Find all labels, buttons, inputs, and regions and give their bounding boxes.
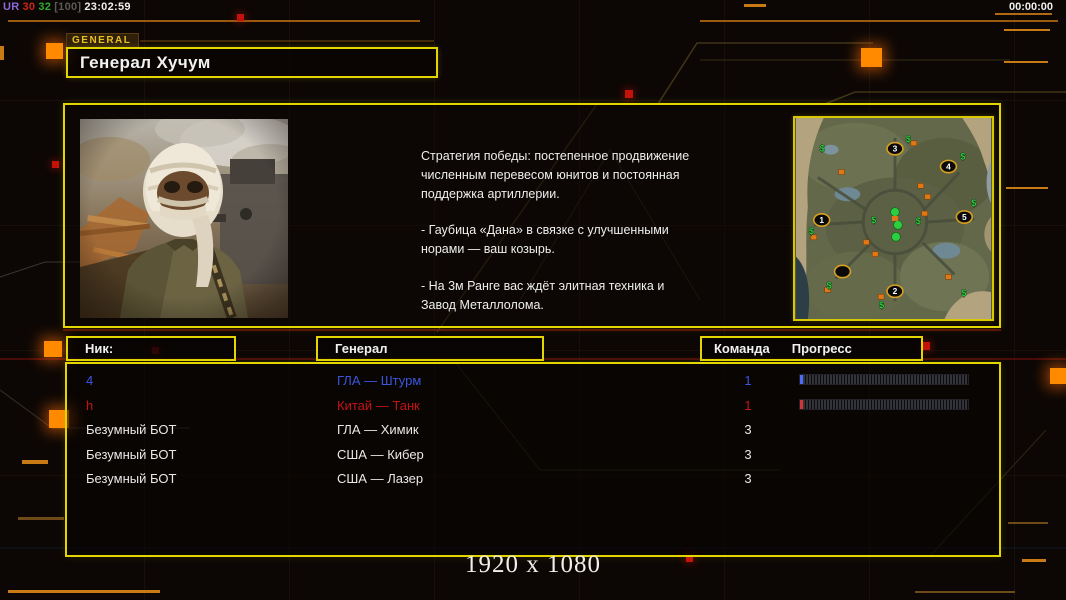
player-row: Безумный БОТ США — Кибер 3: [67, 443, 999, 467]
nick-header-label: Ник:: [85, 341, 113, 356]
debug-segment: 32: [38, 1, 51, 13]
player-general: ГЛА — Химик: [337, 422, 419, 437]
svg-text:2: 2: [893, 286, 898, 296]
column-header-general: Генерал: [316, 336, 544, 361]
general-header-label: Генерал: [335, 341, 387, 356]
svg-text:$: $: [960, 152, 965, 162]
briefing-paragraph: - На 3м Ранге вас ждёт элитная техника и…: [421, 277, 697, 315]
decor-orange-dash: [744, 4, 766, 7]
player-team: 3: [733, 422, 763, 437]
player-general: ГЛА — Штурм: [337, 373, 421, 388]
decor-orange-dash: [1004, 29, 1050, 31]
decor-brown-dash: [18, 517, 64, 520]
player-row: 4 ГЛА — Штурм 1: [67, 369, 999, 393]
decor-orange-dash: [1004, 61, 1048, 63]
decor-red-square: [237, 14, 244, 21]
debug-segment: UR: [3, 1, 20, 13]
decor-orange-dash: [8, 590, 160, 593]
player-row: h Китай — Танк 1: [67, 394, 999, 418]
players-table: 4 ГЛА — Штурм 1 h Китай — Танк 1 Безумны…: [65, 362, 1001, 557]
player-nick: Безумный БОТ: [86, 471, 176, 486]
decor-orange-dash: [1022, 559, 1046, 562]
resolution-label: 1920 x 1080: [465, 551, 601, 579]
progress-bar-fill: [800, 400, 803, 409]
svg-text:$: $: [879, 300, 884, 310]
player-team: 1: [733, 398, 763, 413]
decor-orange-square: [44, 341, 62, 357]
player-general: Китай — Танк: [337, 398, 420, 413]
decor-red-square: [922, 342, 930, 350]
svg-text:$: $: [961, 288, 966, 298]
decor-orange-dash: [1006, 187, 1048, 189]
player-nick: Безумный БОТ: [86, 422, 176, 437]
column-header-nick: Ник:: [66, 336, 236, 361]
player-general: США — Кибер: [337, 447, 424, 462]
progress-bar-fill: [800, 375, 803, 384]
general-name: Генерал Хучум: [80, 53, 211, 73]
decor-brown-dash: [1008, 522, 1048, 524]
general-title-box: Генерал Хучум: [66, 47, 438, 78]
decor-red-square: [625, 90, 633, 98]
decor-orange-dash: [0, 46, 4, 60]
svg-text:$: $: [906, 134, 911, 144]
decor-brown-dash: [915, 591, 1015, 593]
decor-orange-square: [861, 48, 882, 67]
player-general: США — Лазер: [337, 471, 423, 486]
player-nick: 4: [86, 373, 93, 388]
loading-progress-bar: [799, 374, 969, 385]
general-info-panel: Стратегия победы: постепенное продвижени…: [63, 103, 1001, 328]
debug-segment: [100]: [54, 1, 81, 13]
briefing-paragraph: Стратегия победы: постепенное продвижени…: [421, 147, 697, 203]
column-header-team-progress: Команда Прогресс: [700, 336, 923, 361]
svg-text:3: 3: [893, 144, 898, 154]
player-team: 1: [733, 373, 763, 388]
loading-progress-bar: [799, 399, 969, 410]
svg-text:4: 4: [946, 161, 951, 171]
decor-red-square: [52, 161, 59, 168]
svg-text:$: $: [827, 280, 832, 290]
player-row: Безумный БОТ ГЛА — Химик 3: [67, 418, 999, 442]
debug-segment: 23:02:59: [84, 1, 130, 13]
general-portrait: [80, 119, 288, 318]
decor-orange-square: [1050, 368, 1066, 384]
svg-text:5: 5: [962, 212, 967, 222]
svg-text:$: $: [820, 144, 825, 154]
player-row: Безумный БОТ США — Лазер 3: [67, 467, 999, 491]
debug-stats-text: UR3032[100]23:02:59: [3, 1, 134, 13]
briefing-paragraph: - Гаубица «Дана» в связке с улучшенными …: [421, 221, 697, 259]
strategy-briefing: Стратегия победы: постепенное продвижени…: [421, 147, 697, 332]
svg-text:1: 1: [819, 215, 824, 225]
svg-text:$: $: [871, 215, 876, 225]
svg-text:$: $: [916, 216, 921, 226]
minimap: $$$$$$$$$$12345: [793, 116, 994, 321]
player-nick: h: [86, 398, 93, 413]
svg-text:$: $: [971, 198, 976, 208]
match-timer: 00:00:00: [1009, 1, 1053, 13]
debug-segment: 30: [23, 1, 36, 13]
decor-orange-dash: [22, 460, 48, 464]
team-header-label: Команда: [714, 341, 770, 356]
player-team: 3: [733, 447, 763, 462]
svg-text:$: $: [809, 226, 814, 236]
player-nick: Безумный БОТ: [86, 447, 176, 462]
progress-header-label: Прогресс: [792, 341, 852, 356]
player-team: 3: [733, 471, 763, 486]
decor-orange-square: [46, 43, 63, 59]
